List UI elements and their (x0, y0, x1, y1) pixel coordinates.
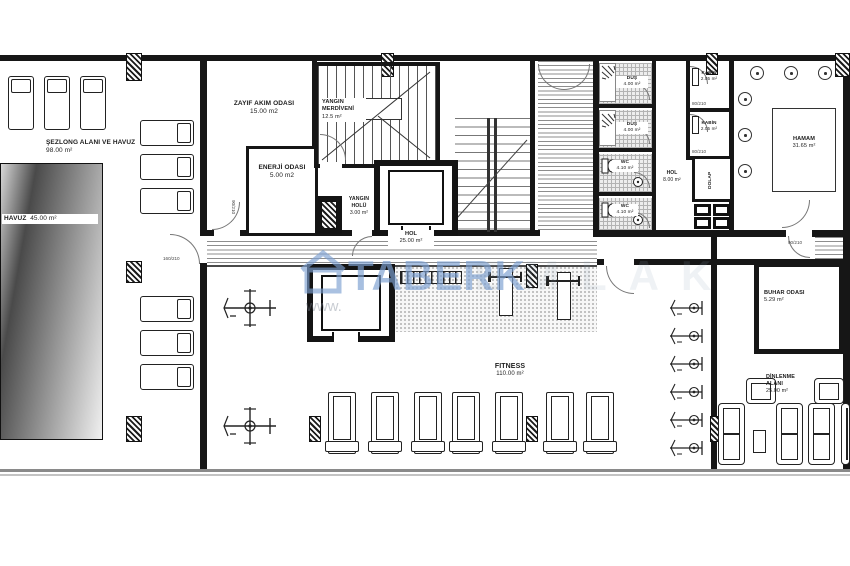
hamam-column (738, 128, 752, 142)
armchair (814, 378, 844, 404)
wall-wetblock-left (593, 55, 599, 237)
room-name: YANGIN MERDİVENİ (322, 99, 364, 114)
treadmill (328, 392, 356, 454)
wall-stair-right (530, 61, 535, 236)
cable-cross-machine (220, 286, 280, 330)
door-tag: 80/210 (692, 149, 706, 154)
exercise-bike (668, 436, 708, 460)
hamam-column (738, 92, 752, 106)
elevator-door (332, 332, 360, 342)
shower-icon (600, 112, 616, 128)
label-yangin-merdiveni: YANGIN MERDİVENİ 12.5 m² (320, 98, 366, 122)
room-area: 98.00 m² (46, 147, 156, 155)
shaft-hatch (321, 201, 337, 229)
exercise-bike (668, 352, 708, 376)
room-area: 4.10 m² (612, 210, 638, 216)
wall-terrace (200, 55, 207, 233)
room-area: 8.00 m² (658, 177, 686, 184)
side-table (753, 430, 766, 453)
room-name: BUHAR ODASI (764, 290, 832, 297)
label-yangin-holu: YANGIN HOLÜ 3.00 m² (342, 196, 376, 216)
terrace-edge (0, 469, 850, 472)
elevator-shaft (374, 160, 458, 236)
sink-icon (632, 176, 644, 188)
hamam-column (750, 66, 764, 80)
column (526, 416, 538, 442)
room-area: 15.00 m2 (222, 108, 306, 116)
room-area: 45.00 m² (30, 215, 56, 222)
shower-icon (600, 64, 616, 80)
door-opening (320, 162, 342, 169)
wall-kabin-h (686, 108, 733, 112)
watermark-url: www. (306, 298, 342, 315)
room-name: YANGIN HOLÜ (342, 196, 376, 210)
treadmill (371, 392, 399, 454)
sun-lounger (80, 76, 106, 130)
room-name: DOLAP (708, 164, 714, 196)
sun-lounger (140, 154, 194, 180)
room-name: ZAYIF AKIM ODASI (222, 100, 306, 108)
locker (694, 204, 711, 216)
exercise-bike (668, 324, 708, 348)
stair-break-line (455, 118, 530, 232)
treadmill (586, 392, 614, 454)
main-stair (455, 118, 530, 232)
room-name: ENERJİ ODASI (250, 164, 314, 172)
room-area: 4.10 m² (612, 166, 638, 172)
room-area: 31.65 m² (778, 143, 830, 150)
treadmill (546, 392, 574, 454)
door-arc (782, 200, 810, 228)
sofa (808, 403, 835, 465)
sofa (718, 403, 745, 465)
hamam-column (738, 164, 752, 178)
room-area: 5.00 m2 (250, 172, 314, 180)
label-fitness: FITNESS 110.00 m² (478, 362, 542, 379)
room-area: 2.05 m² (692, 76, 726, 82)
house-icon (296, 248, 350, 296)
locker (694, 217, 711, 229)
label-dus-1: DUŞ 4.00 m² (616, 76, 648, 88)
room-name: DİNLENME ALANI (766, 374, 812, 388)
door-opening (214, 229, 240, 237)
column (309, 416, 321, 442)
room-area: 4.00 m² (616, 82, 648, 88)
label-havuz: HAVUZ 45.00 m² (2, 214, 98, 224)
label-kabin-1: KABİN 2.05 m² (692, 70, 726, 82)
room-area: 25.00 m² (390, 238, 432, 245)
room-name: ŞEZLONG ALANI VE HAVUZ (46, 139, 156, 147)
label-dinlenme: DİNLENME ALANI 25.00 m² (766, 374, 812, 395)
sofa (776, 403, 803, 465)
exercise-bike (668, 380, 708, 404)
column (126, 261, 142, 283)
column (126, 416, 142, 442)
label-enerji: ENERJİ ODASI 5.00 m2 (250, 164, 314, 181)
sun-lounger (140, 364, 194, 390)
label-hol-2: HOL 8.00 m² (658, 170, 686, 183)
room-area: 25.00 m² (766, 388, 812, 395)
label-dolap: DOLAP (708, 164, 717, 196)
sun-lounger (140, 330, 194, 356)
locker (713, 204, 730, 216)
door-tag: 160/210 (163, 256, 180, 261)
treadmill (495, 392, 523, 454)
pool (0, 163, 103, 440)
door-tag: 80/210 (692, 101, 706, 106)
label-kabin-2: KABİN 2.05 m² (692, 120, 726, 132)
wall-wet-h (597, 192, 656, 196)
wall-wet-h (597, 148, 656, 152)
door-tag: 90/210 (788, 240, 802, 245)
sun-lounger (8, 76, 34, 130)
sun-lounger (140, 188, 194, 214)
exercise-bike (668, 408, 708, 432)
room-area: 5.29 m² (764, 297, 832, 304)
room-area: 4.00 m² (616, 128, 648, 134)
wall-wet-h (597, 104, 656, 108)
sofa (841, 403, 850, 465)
label-hamam: HAMAM 31.65 m² (778, 136, 830, 151)
label-wc-1: WC 4.10 m² (612, 160, 638, 172)
label-dus-2: DUŞ 4.00 m² (616, 122, 648, 134)
room-enerji (246, 146, 318, 236)
column (126, 53, 142, 81)
treadmill (414, 392, 442, 454)
room-area: 2.05 m² (692, 126, 726, 132)
cable-cross-machine (220, 404, 280, 448)
column (835, 53, 850, 77)
room-area: 3.00 m² (342, 210, 376, 217)
hamam-column (784, 66, 798, 80)
label-hol: HOL 25.00 m² (388, 230, 434, 247)
label-buhar: BUHAR ODASI 5.29 m² (764, 290, 832, 305)
room-name: HOL (390, 231, 432, 238)
label-zayif: ZAYIF AKIM ODASI 15.00 m2 (222, 100, 306, 117)
room-area: 12.5 m² (322, 114, 364, 121)
elevator-car (388, 170, 444, 225)
room-name: HAMAM (778, 136, 830, 143)
wall-wetblock-bottom (597, 230, 733, 237)
label-wc-2: WC 4.10 m² (612, 204, 638, 216)
service-hatch (815, 237, 843, 259)
wall-terrace (200, 263, 207, 470)
room-name: FITNESS (478, 362, 542, 371)
sun-lounger (140, 296, 194, 322)
locker (713, 217, 730, 229)
hamam-column (818, 66, 832, 80)
room-name: HAVUZ (4, 215, 26, 222)
room-area: 110.00 m² (478, 371, 542, 379)
watermark-brand-faint: EMLAK (474, 252, 733, 300)
treadmill (452, 392, 480, 454)
service-shaft (316, 196, 342, 234)
door-tag: 90/210 (231, 200, 236, 214)
label-sezlong: ŞEZLONG ALANI VE HAVUZ 98.00 m² (46, 139, 156, 156)
room-buhar (754, 262, 844, 354)
floor-plan: ŞEZLONG ALANI VE HAVUZ 98.00 m² HAVUZ 45… (0, 0, 850, 566)
sun-lounger (44, 76, 70, 130)
terrace-edge-2 (0, 474, 850, 476)
